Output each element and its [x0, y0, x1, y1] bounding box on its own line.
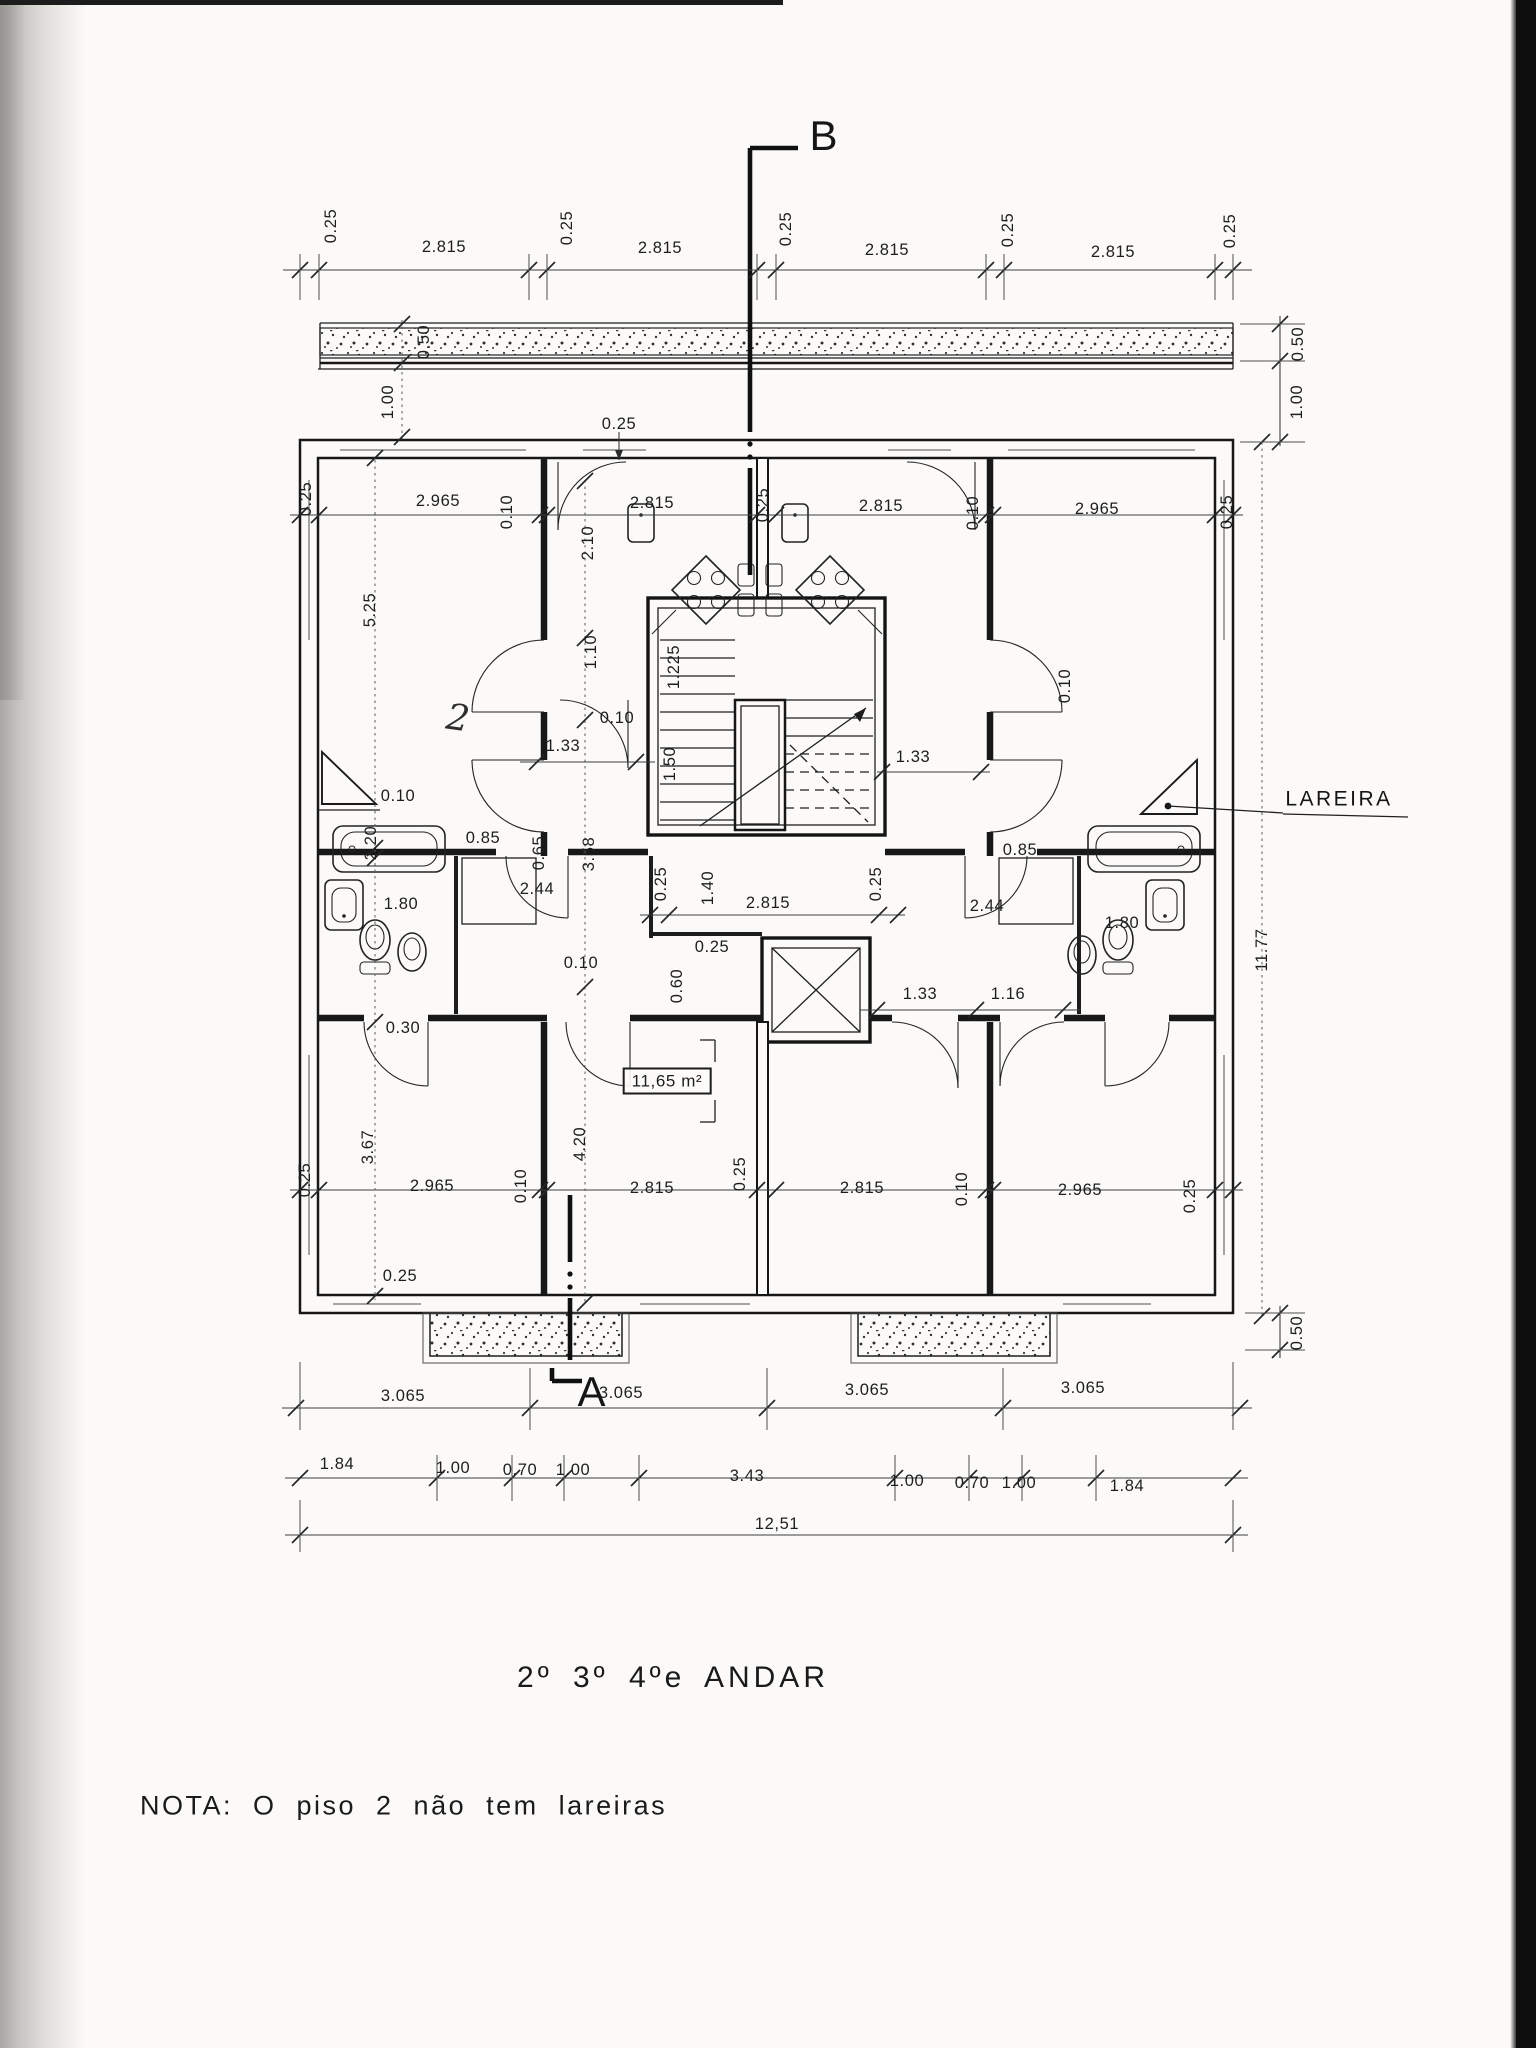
scanned-page: BA0.252.8150.252.8150.252.8150.252.8150.… [0, 0, 1536, 2048]
dimension-label: 0.70 [503, 1462, 538, 1479]
bottom-balconies [423, 1313, 1057, 1363]
dimension-label: 0.25 [298, 482, 315, 517]
dimension-label: 0.10 [381, 788, 416, 805]
scan-edge-top [0, 0, 783, 5]
dimension-label: 1.80 [1105, 915, 1140, 932]
dimension-label: 3.43 [730, 1468, 765, 1485]
drawing-note: NOTA: O piso 2 não tem lareiras [140, 1793, 667, 1820]
dimension-label: 1.225 [666, 645, 683, 689]
top-balcony [318, 323, 1233, 369]
dimension-label: 1.40 [700, 871, 717, 906]
dimension-label: 0.25 [653, 867, 670, 902]
dimension-label: 0.50 [1290, 327, 1307, 362]
fireplaces [318, 752, 1408, 817]
dimension-lines [282, 254, 1305, 1552]
dimension-label: 1.16 [991, 986, 1026, 1003]
dimension-label: 0.10 [513, 1169, 530, 1204]
dimension-label: 2.815 [746, 895, 790, 912]
dimension-label: 1.00 [380, 385, 397, 420]
dimension-label: 0.25 [383, 1268, 418, 1285]
fireplace-label: LAREIRA [1285, 789, 1392, 810]
dimension-label: 3.67 [360, 1130, 377, 1165]
dimension-label: 2.815 [859, 498, 903, 515]
dimension-label: 12,51 [755, 1516, 799, 1533]
dimension-label: 3.58 [581, 837, 598, 872]
dimension-label: 1.33 [903, 986, 938, 1003]
dimension-label: 1.00 [556, 1462, 591, 1479]
dimension-label: 1.33 [896, 749, 931, 766]
dimension-label: 2.815 [422, 239, 466, 256]
dimension-label: 1.84 [1110, 1478, 1145, 1495]
dimension-label: 3.065 [845, 1382, 889, 1399]
dimension-label: 0.25 [559, 211, 576, 246]
dimension-label: 2.965 [1075, 501, 1119, 518]
dimension-label: 2.815 [865, 242, 909, 259]
dimension-label: 0.10 [600, 710, 635, 727]
scan-shadow-left-dark [0, 0, 26, 700]
dimension-label: 0.25 [1219, 495, 1236, 530]
dimension-label: 0.25 [602, 416, 637, 433]
dimension-label: 0.85 [466, 830, 501, 847]
dimension-label: 0.25 [1182, 1179, 1199, 1214]
section-marker-b: B [809, 115, 838, 157]
dimension-label: 0.30 [386, 1020, 421, 1037]
dimension-label: 1.00 [436, 1460, 471, 1477]
dimension-label: 2.965 [416, 493, 460, 510]
dimension-label: 0.25 [1000, 213, 1017, 248]
dimension-label: 2.815 [630, 495, 674, 512]
dimension-label: 1.80 [384, 896, 419, 913]
dimension-label: 4.20 [572, 1127, 589, 1162]
dimension-label: 1.10 [583, 635, 600, 670]
dimension-label: 2.815 [638, 240, 682, 257]
dimension-label: 0.60 [669, 969, 686, 1004]
dimension-label: 0.10 [954, 1172, 971, 1207]
dimension-label: 2.44 [970, 898, 1005, 915]
staircase [660, 640, 873, 830]
dimension-label: 0.25 [868, 867, 885, 902]
dimension-label: 0.25 [323, 209, 340, 244]
dimension-label: 0.25 [695, 939, 730, 956]
dimension-label: 1.33 [546, 738, 581, 755]
dimension-label: 0.10 [1057, 669, 1074, 704]
dimension-label: 0.10 [564, 955, 599, 972]
dimension-label: 0.50 [416, 325, 433, 360]
scan-edge-right [1516, 0, 1536, 2048]
dimension-label: 2.44 [520, 881, 555, 898]
dimension-label: 1.50 [662, 747, 679, 782]
dimension-label: 0.65 [531, 836, 548, 871]
dimension-label: 0.25 [732, 1157, 749, 1192]
drawing-title: 2º 3º 4ºe ANDAR [517, 1663, 829, 1693]
dimension-label: 2.20 [363, 826, 380, 861]
dimension-label: 0.25 [1222, 214, 1239, 249]
dimension-label: 5.25 [362, 593, 379, 628]
handwritten-mark: 2 [444, 700, 472, 739]
dimension-label: 2.815 [840, 1180, 884, 1197]
dimension-label: 1.00 [1002, 1475, 1037, 1492]
dimension-label: 0.25 [297, 1163, 314, 1198]
dimension-label: 0.70 [955, 1475, 990, 1492]
dimension-label: 0.50 [1289, 1316, 1306, 1351]
dimension-label: 0.25 [755, 488, 772, 523]
dimension-label: 2.965 [410, 1178, 454, 1195]
dimension-label: 0.10 [499, 495, 516, 530]
dimension-label: 3.065 [1061, 1380, 1105, 1397]
dimension-label: 2.965 [1058, 1182, 1102, 1199]
dimension-label: 0.25 [778, 212, 795, 247]
dimension-label: 1.00 [1289, 385, 1306, 420]
dimension-label: 2.815 [630, 1180, 674, 1197]
dimension-label: 2.815 [1091, 244, 1135, 261]
dimension-label: 3.065 [381, 1388, 425, 1405]
kitchen-fixtures [628, 504, 882, 634]
dimension-label: 2.10 [580, 526, 597, 561]
dimension-label: 3.065 [599, 1385, 643, 1402]
area-label: 11,65 m² [623, 1068, 712, 1095]
dimension-label: 1.84 [320, 1456, 355, 1473]
dimension-label: 1.00 [890, 1473, 925, 1490]
floor-plan-drawing [0, 0, 1536, 2048]
dimension-label: 0.85 [1003, 842, 1038, 859]
dimension-label: 0.10 [965, 496, 982, 531]
dimension-label: 11.77 [1254, 928, 1271, 971]
